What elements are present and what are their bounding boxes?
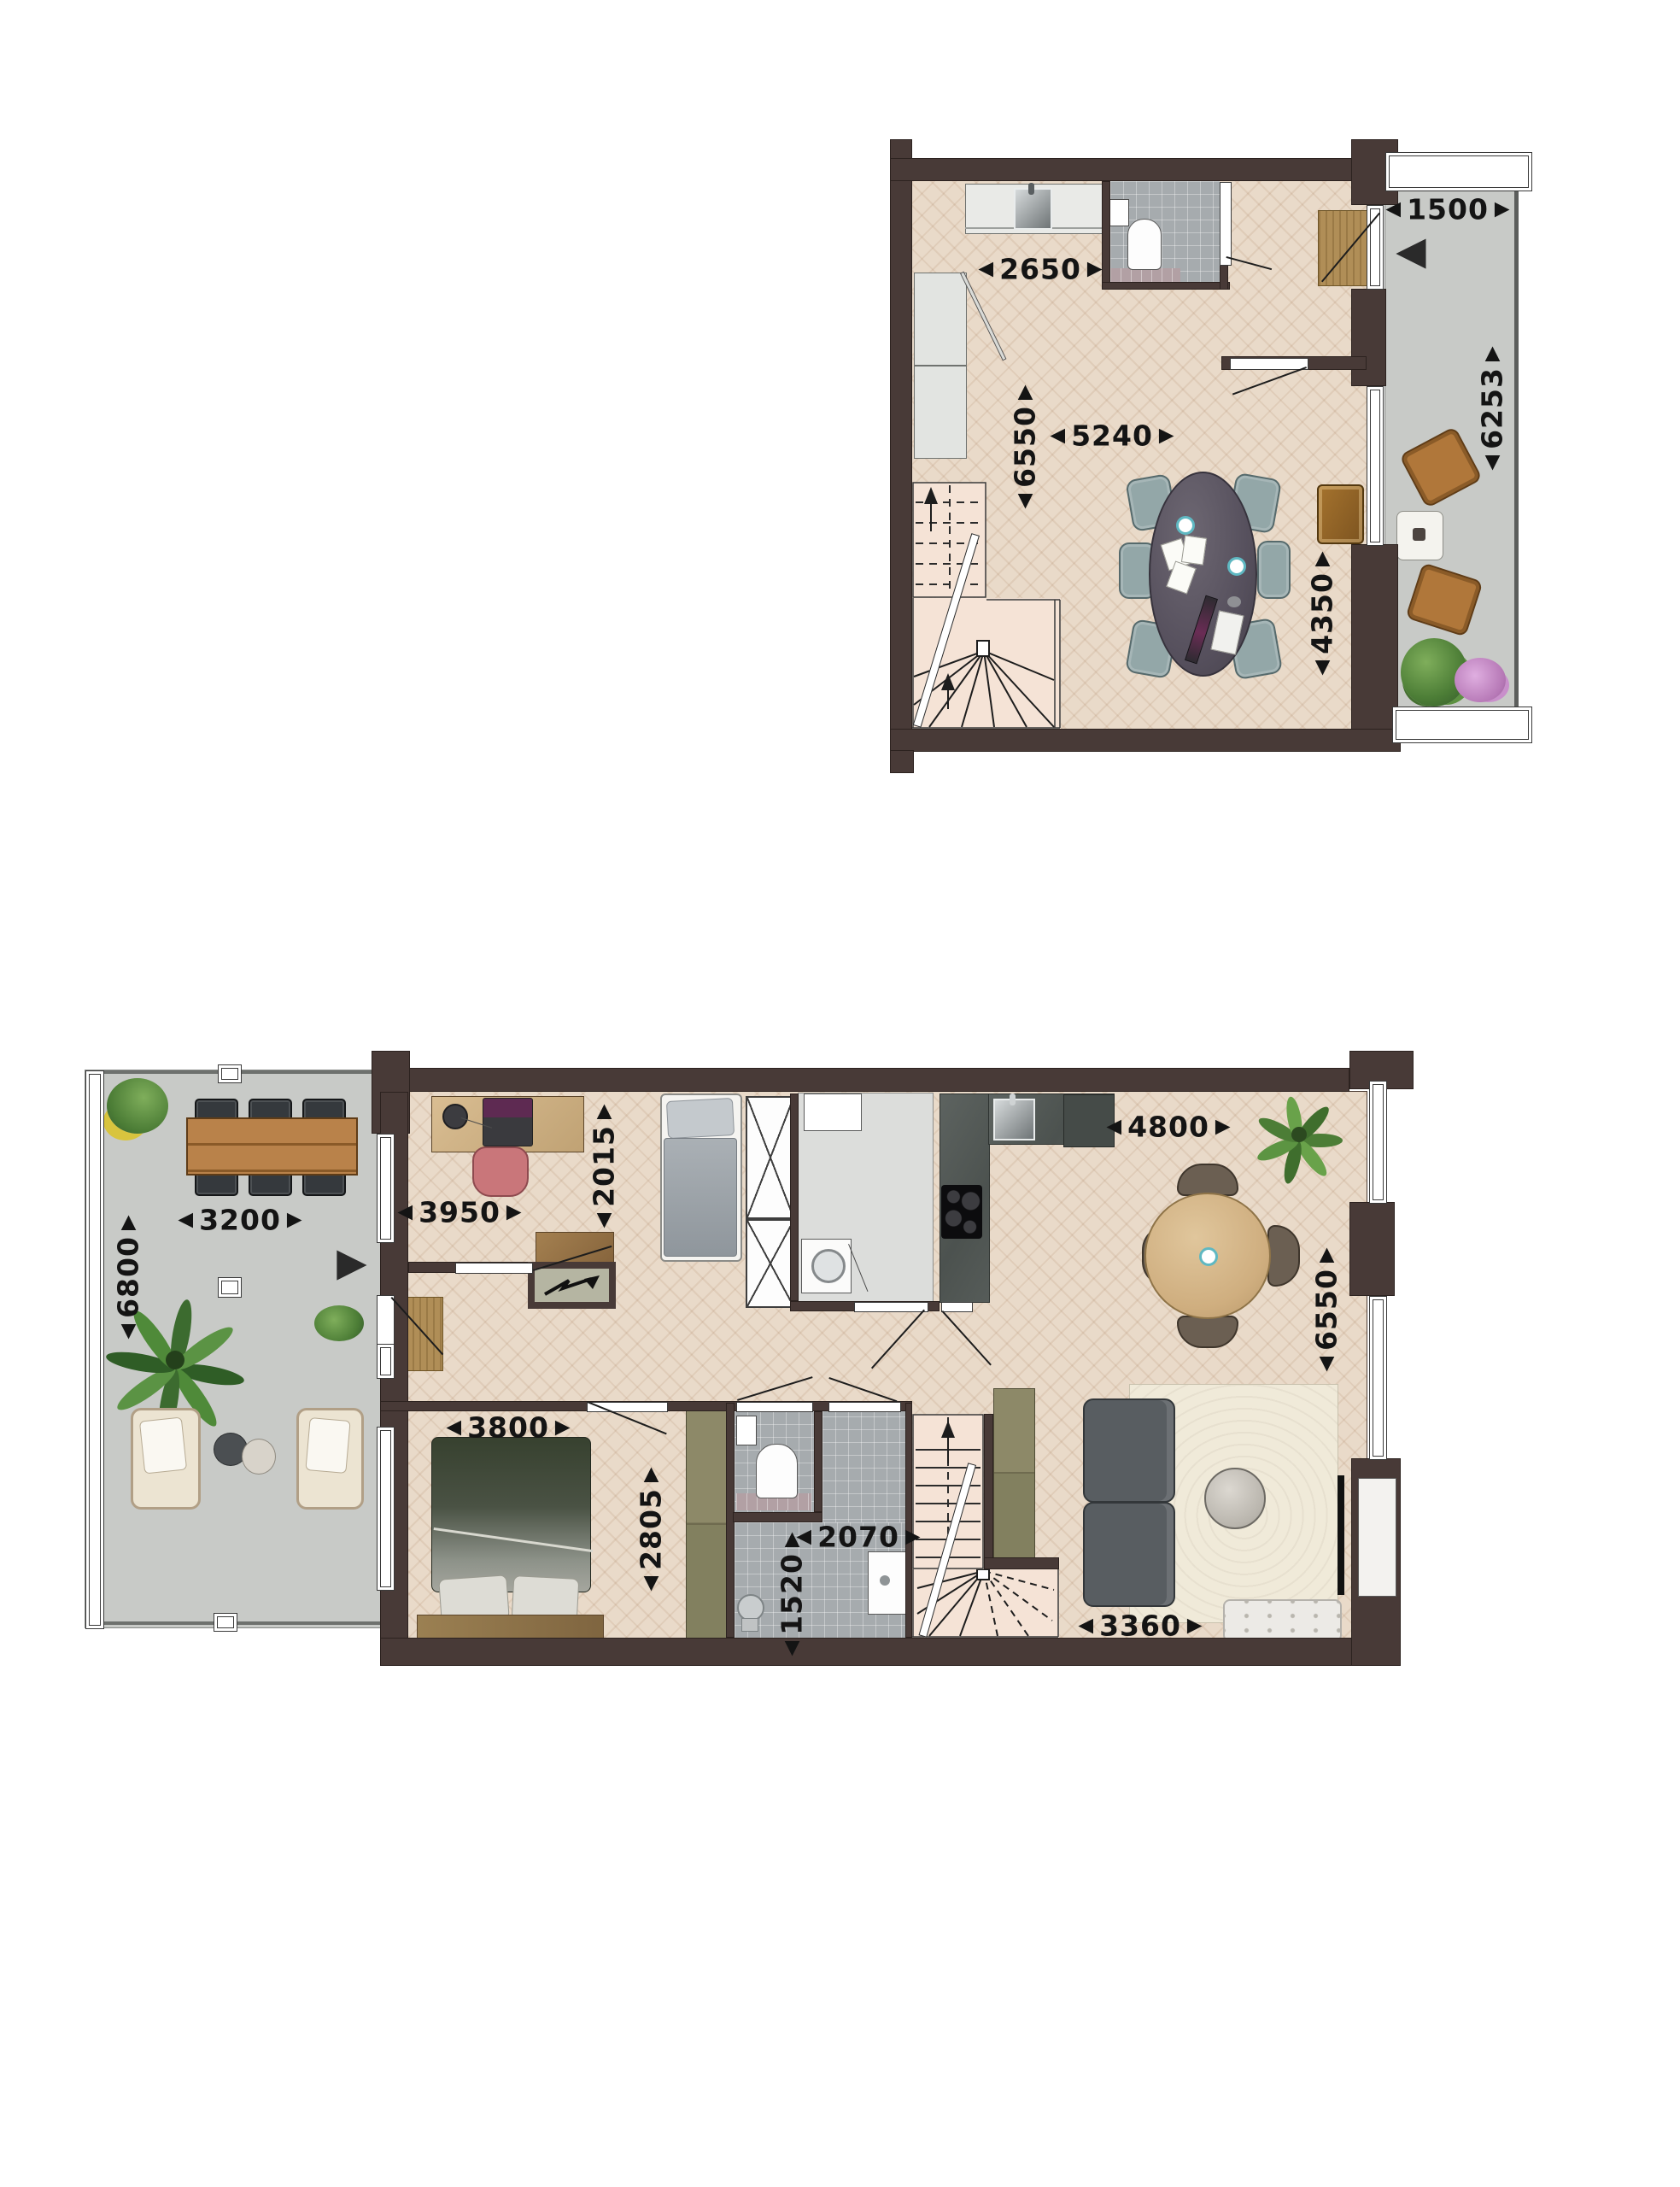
upper-bottom-left-step — [890, 750, 914, 773]
upper-wc-basin — [1109, 199, 1129, 226]
lounge-chair-left — [131, 1408, 201, 1510]
dim-bedroom-width: ◀ 3800 ▶ — [446, 1411, 570, 1445]
upper-balcony-rail-bottom — [1392, 707, 1532, 743]
washing-machine-door — [811, 1249, 846, 1283]
upper-tall-cabinet-top — [914, 273, 967, 366]
dim-office-depth: ◀ 2015 ▶ — [588, 1104, 621, 1228]
tv-niche — [1358, 1478, 1396, 1597]
terrace-post — [218, 1277, 242, 1298]
desk-lamp — [442, 1104, 468, 1129]
terrace-dining-table — [186, 1117, 358, 1176]
dim-arrow-left-icon: ◀ — [1078, 1616, 1093, 1636]
upper-entry-arrow-icon: ◀ — [1396, 231, 1425, 270]
dim-arrow-left-icon: ◀ — [641, 1576, 661, 1592]
dim-arrow-left-icon: ◀ — [1016, 494, 1035, 509]
dim-arrow-left-icon: ◀ — [119, 1324, 138, 1340]
floorplan-canvas: ◀ 2650 ▶ ◀ 5240 ▶ ◀ 6550 ▶ ◀ 4350 ▶ ◀ 15… — [0, 0, 1680, 2187]
dim-arrow-right-icon: ▶ — [506, 1203, 522, 1222]
wc-bath-divider-wall — [814, 1411, 822, 1512]
dim-arrow-right-icon: ▶ — [1215, 1117, 1231, 1137]
balcony-table-object — [1413, 528, 1425, 541]
office-chair — [472, 1146, 529, 1197]
dim-arrow-right-icon: ▶ — [1016, 384, 1035, 400]
table-light-dot — [1227, 557, 1246, 576]
dim-living-width: ◀ 3360 ▶ — [1078, 1609, 1202, 1643]
upper-balcony-edge — [1514, 152, 1519, 742]
upper-kitchen-faucet — [1028, 183, 1034, 195]
double-bed-duvet — [431, 1437, 591, 1592]
table-light-dot — [1176, 516, 1195, 535]
terrace-edge-bottom — [102, 1621, 380, 1625]
meter-lightning-icon — [535, 1269, 609, 1302]
terrace-railing-left — [85, 1070, 104, 1629]
lounge-pillow — [305, 1417, 350, 1474]
lower-entry-arrow-icon: ▶ — [337, 1242, 366, 1281]
lower-bottom-wall — [380, 1638, 1401, 1666]
dim-arrow-left-icon: ◀ — [1483, 455, 1502, 471]
utility-left-wall — [790, 1093, 799, 1301]
bed-headboard — [417, 1615, 604, 1640]
dim-upper-balcony-depth: ◀ 6253 ▶ — [1476, 346, 1509, 470]
upper-right-window — [1367, 386, 1384, 546]
kitchen-faucet — [1010, 1093, 1016, 1105]
dim-bath-width: ◀ 2070 ▶ — [796, 1521, 920, 1554]
coffee-table-round — [1204, 1468, 1266, 1529]
dim-arrow-right-icon: ▶ — [1495, 200, 1510, 220]
dim-arrow-left-icon: ◀ — [446, 1418, 461, 1438]
upper-wc-bottom-wall — [1102, 282, 1230, 290]
upper-bottom-right-corner — [1351, 544, 1398, 752]
terrace-bush-yellow — [107, 1078, 168, 1134]
round-table-chair — [1177, 1164, 1238, 1196]
wc-door — [736, 1402, 813, 1412]
sofa-module-bottom — [1083, 1502, 1175, 1607]
upper-wc-left-wall — [1102, 181, 1110, 289]
dim-arrow-right-icon: ▶ — [905, 1527, 921, 1547]
closet-x-bottom — [746, 1219, 795, 1308]
washbasin-faucet — [880, 1575, 890, 1586]
dim-terrace-depth: ◀ 6800 ▶ — [112, 1215, 145, 1339]
dim-upper-kitchen-width: ◀ 2650 ▶ — [978, 253, 1102, 286]
bedroom-wardrobe — [686, 1408, 728, 1642]
dim-arrow-right-icon: ▶ — [1313, 551, 1332, 566]
dim-arrow-left-icon: ◀ — [397, 1203, 413, 1222]
bedroom-window — [377, 1427, 395, 1591]
dim-arrow-right-icon: ▶ — [1159, 426, 1174, 446]
upper-wc-toilet — [1127, 219, 1162, 270]
paper-sheet — [1181, 535, 1207, 565]
lower-right-window-bottom — [1369, 1296, 1387, 1460]
dim-upper-balcony-width: ◀ 1500 ▶ — [1385, 193, 1509, 226]
dim-arrow-left-icon: ◀ — [1106, 1117, 1121, 1137]
dim-arrow-right-icon: ▶ — [594, 1104, 614, 1119]
tv-screen — [1338, 1475, 1344, 1595]
terrace-bush-right — [314, 1305, 364, 1341]
upper-wc-door-jamb — [1220, 264, 1228, 290]
kitchen-hall-door — [941, 1302, 973, 1312]
fern-center — [1291, 1127, 1307, 1142]
upper-tall-cabinet-bottom — [914, 366, 967, 459]
dim-arrow-right-icon: ▶ — [1187, 1616, 1203, 1636]
mouse-on-table — [1227, 596, 1241, 607]
dim-arrow-left-icon: ◀ — [1050, 426, 1065, 446]
dim-upper-depth-right: ◀ 4350 ▶ — [1306, 551, 1339, 675]
dim-arrow-left-icon: ◀ — [1385, 200, 1401, 220]
lower-top-wall — [380, 1068, 1349, 1092]
dim-arrow-right-icon: ▶ — [1483, 346, 1502, 361]
dim-arrow-right-icon: ▶ — [287, 1211, 302, 1230]
dim-arrow-right-icon: ▶ — [119, 1215, 138, 1230]
lounge-pillow — [139, 1417, 187, 1475]
upper-entry-door — [1230, 358, 1308, 370]
upper-wc-floor — [1110, 181, 1220, 282]
upper-wc-door — [1220, 182, 1232, 266]
dim-arrow-left-icon: ◀ — [178, 1211, 193, 1230]
dim-office-width: ◀ 3950 ▶ — [397, 1196, 521, 1229]
lower-right-mid-pier — [1349, 1202, 1395, 1296]
magazine-rack — [1317, 484, 1364, 544]
single-bed-pillow — [666, 1098, 735, 1139]
balcony-plant-hydrangea — [1455, 658, 1506, 702]
terrace-post — [218, 1064, 242, 1083]
bench-ottoman — [1223, 1599, 1342, 1642]
office-window — [377, 1134, 395, 1243]
upper-balcony-rail-top — [1385, 152, 1532, 191]
dim-arrow-right-icon: ▶ — [782, 1532, 802, 1547]
meter-cabinet — [528, 1262, 616, 1309]
wc-hand-basin — [736, 1416, 757, 1445]
dim-arrow-right-icon: ▶ — [1317, 1247, 1337, 1263]
dim-bedroom-depth: ◀ 2805 ▶ — [635, 1467, 668, 1591]
upper-right-mid-pillar — [1351, 289, 1386, 386]
bathroom-door — [828, 1402, 901, 1412]
lounge-chair-right — [296, 1408, 364, 1510]
closet-x-top — [746, 1096, 795, 1219]
shower-drain — [741, 1618, 758, 1632]
dim-kitchen-width: ◀ 4800 ▶ — [1106, 1111, 1230, 1144]
office-door — [455, 1263, 533, 1274]
fern-plant — [1254, 1098, 1343, 1180]
dim-arrow-left-icon: ◀ — [1313, 660, 1332, 676]
stair-side-wall — [984, 1414, 993, 1569]
dining-chair — [1257, 541, 1291, 599]
dim-living-depth: ◀ 6550 ▶ — [1310, 1247, 1343, 1371]
dim-arrow-left-icon: ◀ — [1317, 1357, 1337, 1372]
dim-arrow-right-icon: ▶ — [641, 1467, 661, 1482]
stair-bottom-wall — [984, 1557, 1059, 1569]
terrace-side-table-light — [242, 1439, 276, 1475]
dim-arrow-right-icon: ▶ — [555, 1418, 571, 1438]
front-door-sidelight — [377, 1344, 395, 1379]
lower-right-window-top — [1369, 1081, 1387, 1204]
terrace-post — [214, 1613, 237, 1632]
upper-wc-tile-shelf — [1110, 268, 1180, 283]
dim-upper-living-width: ◀ 5240 ▶ — [1050, 419, 1174, 453]
dim-bath-depth: ◀ 1520 ▶ — [776, 1532, 809, 1656]
dim-arrow-left-icon: ◀ — [978, 260, 993, 279]
utility-door — [854, 1302, 928, 1312]
desk-laptop — [483, 1098, 533, 1146]
upper-left-wall — [890, 139, 912, 752]
table-vase-dot — [1199, 1247, 1218, 1266]
dim-arrow-right-icon: ▶ — [1087, 260, 1103, 279]
upper-bottom-wall — [890, 729, 1401, 752]
sofa-module-top — [1083, 1398, 1175, 1503]
dim-upper-depth-left: ◀ 6550 ▶ — [1009, 384, 1042, 508]
upper-top-wall — [890, 158, 1367, 181]
palm-center — [166, 1351, 184, 1369]
front-door — [377, 1295, 395, 1346]
dim-arrow-left-icon: ◀ — [782, 1641, 802, 1656]
dim-arrow-left-icon: ◀ — [594, 1213, 614, 1228]
bath-toilet — [756, 1444, 798, 1498]
utility-counter-box — [804, 1093, 862, 1131]
single-bed-duvet — [664, 1138, 737, 1257]
cooktop — [941, 1185, 982, 1239]
stair-cabinet — [993, 1388, 1035, 1559]
dim-terrace-width: ◀ 3200 ▶ — [178, 1204, 301, 1237]
